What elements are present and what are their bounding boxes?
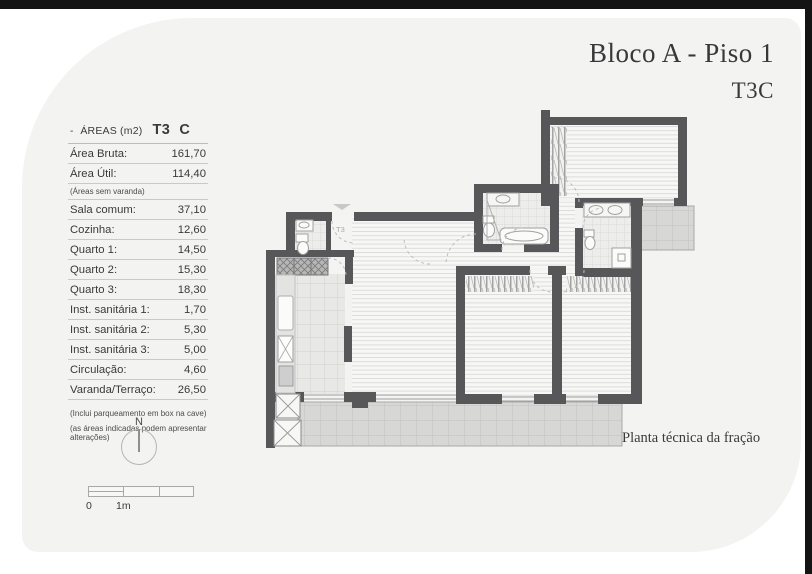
area-label: (Áreas sem varanda) <box>70 187 145 196</box>
area-value: 14,50 <box>178 244 206 256</box>
areas-table: - ÁREAS (m2) T3 C Área Bruta: 161,70 Áre… <box>68 122 208 448</box>
page-title: Bloco A - Piso 1 <box>589 38 774 69</box>
area-value: 15,30 <box>178 264 206 276</box>
area-value: 161,70 <box>171 148 206 160</box>
area-label: Sala comum: <box>70 204 136 216</box>
area-label: Área Útil: <box>70 168 116 180</box>
header-dash: - <box>70 126 73 137</box>
areas-table-row: Área Bruta: 161,70 <box>68 144 208 164</box>
scale-labels: 0 1m <box>88 500 194 514</box>
area-label: Quarto 2: <box>70 264 117 276</box>
area-label: Circulação: <box>70 364 127 376</box>
area-value: 4,60 <box>184 364 206 376</box>
area-label: Quarto 3: <box>70 284 117 296</box>
photo-frame-top <box>0 0 812 9</box>
north-compass: N <box>104 416 174 465</box>
north-label: N <box>104 416 174 428</box>
kitchen-fixtures <box>276 275 295 393</box>
area-value: 5,00 <box>184 344 206 356</box>
areas-table-row: Área Útil: 114,40 <box>68 164 208 184</box>
areas-table-body: Área Bruta: 161,70 Área Útil: 114,40 (Ár… <box>68 144 208 400</box>
area-value: 114,40 <box>172 168 206 180</box>
area-label: Quarto 1: <box>70 244 117 256</box>
scale-bar-graphic <box>88 486 194 497</box>
areas-table-row: Sala comum: 37,10 <box>68 200 208 220</box>
areas-table-row: Quarto 2: 15,30 <box>68 260 208 280</box>
area-label: Área Bruta: <box>70 148 127 160</box>
header-label: ÁREAS (m2) <box>80 125 142 137</box>
areas-table-row: Quarto 1: 14,50 <box>68 240 208 260</box>
areas-table-row: Circulação: 4,60 <box>68 360 208 380</box>
area-value: 5,30 <box>184 324 206 336</box>
areas-table-row: Varanda/Terraço: 26,50 <box>68 380 208 400</box>
area-label: Cozinha: <box>70 224 115 236</box>
area-value: 12,60 <box>178 224 206 236</box>
unit-label: T3 <box>336 225 345 234</box>
scale-cell-3 <box>160 487 193 496</box>
area-value: 1,70 <box>184 304 206 316</box>
area-value: 26,50 <box>178 384 206 396</box>
photo-frame-right <box>805 0 812 574</box>
floor-plan-sheet: { "page": { "title_line1": "Bloco A - Pi… <box>0 0 812 574</box>
areas-table-row: Inst. sanitária 3: 5,00 <box>68 340 208 360</box>
scale-one-meter-label: 1m <box>116 500 131 512</box>
floor-plan-drawing: T3 <box>262 100 717 470</box>
compass-needle-icon <box>138 429 140 452</box>
areas-table-row: Inst. sanitária 2: 5,30 <box>68 320 208 340</box>
areas-table-row: Quarto 3: 18,30 <box>68 280 208 300</box>
areas-table-row: Cozinha: 12,60 <box>68 220 208 240</box>
header-type-code: T3 <box>152 122 170 138</box>
area-label: Inst. sanitária 2: <box>70 324 150 336</box>
header-fraction: C <box>179 122 189 138</box>
scale-cell-1 <box>89 487 124 496</box>
areas-table-row: Inst. sanitária 1: 1,70 <box>68 300 208 320</box>
scale-zero-label: 0 <box>86 500 92 512</box>
area-value: 18,30 <box>178 284 206 296</box>
scale-bar: 0 1m <box>88 486 194 514</box>
area-label: Varanda/Terraço: <box>70 384 156 396</box>
area-value: 37,10 <box>178 204 206 216</box>
scale-cell-2 <box>124 487 160 496</box>
areas-table-header: - ÁREAS (m2) T3 C <box>68 122 208 144</box>
areas-table-row: (Áreas sem varanda) <box>68 184 208 200</box>
title-block: Bloco A - Piso 1 T3C <box>589 38 774 104</box>
area-label: Inst. sanitária 1: <box>70 304 150 316</box>
area-label: Inst. sanitária 3: <box>70 344 150 356</box>
